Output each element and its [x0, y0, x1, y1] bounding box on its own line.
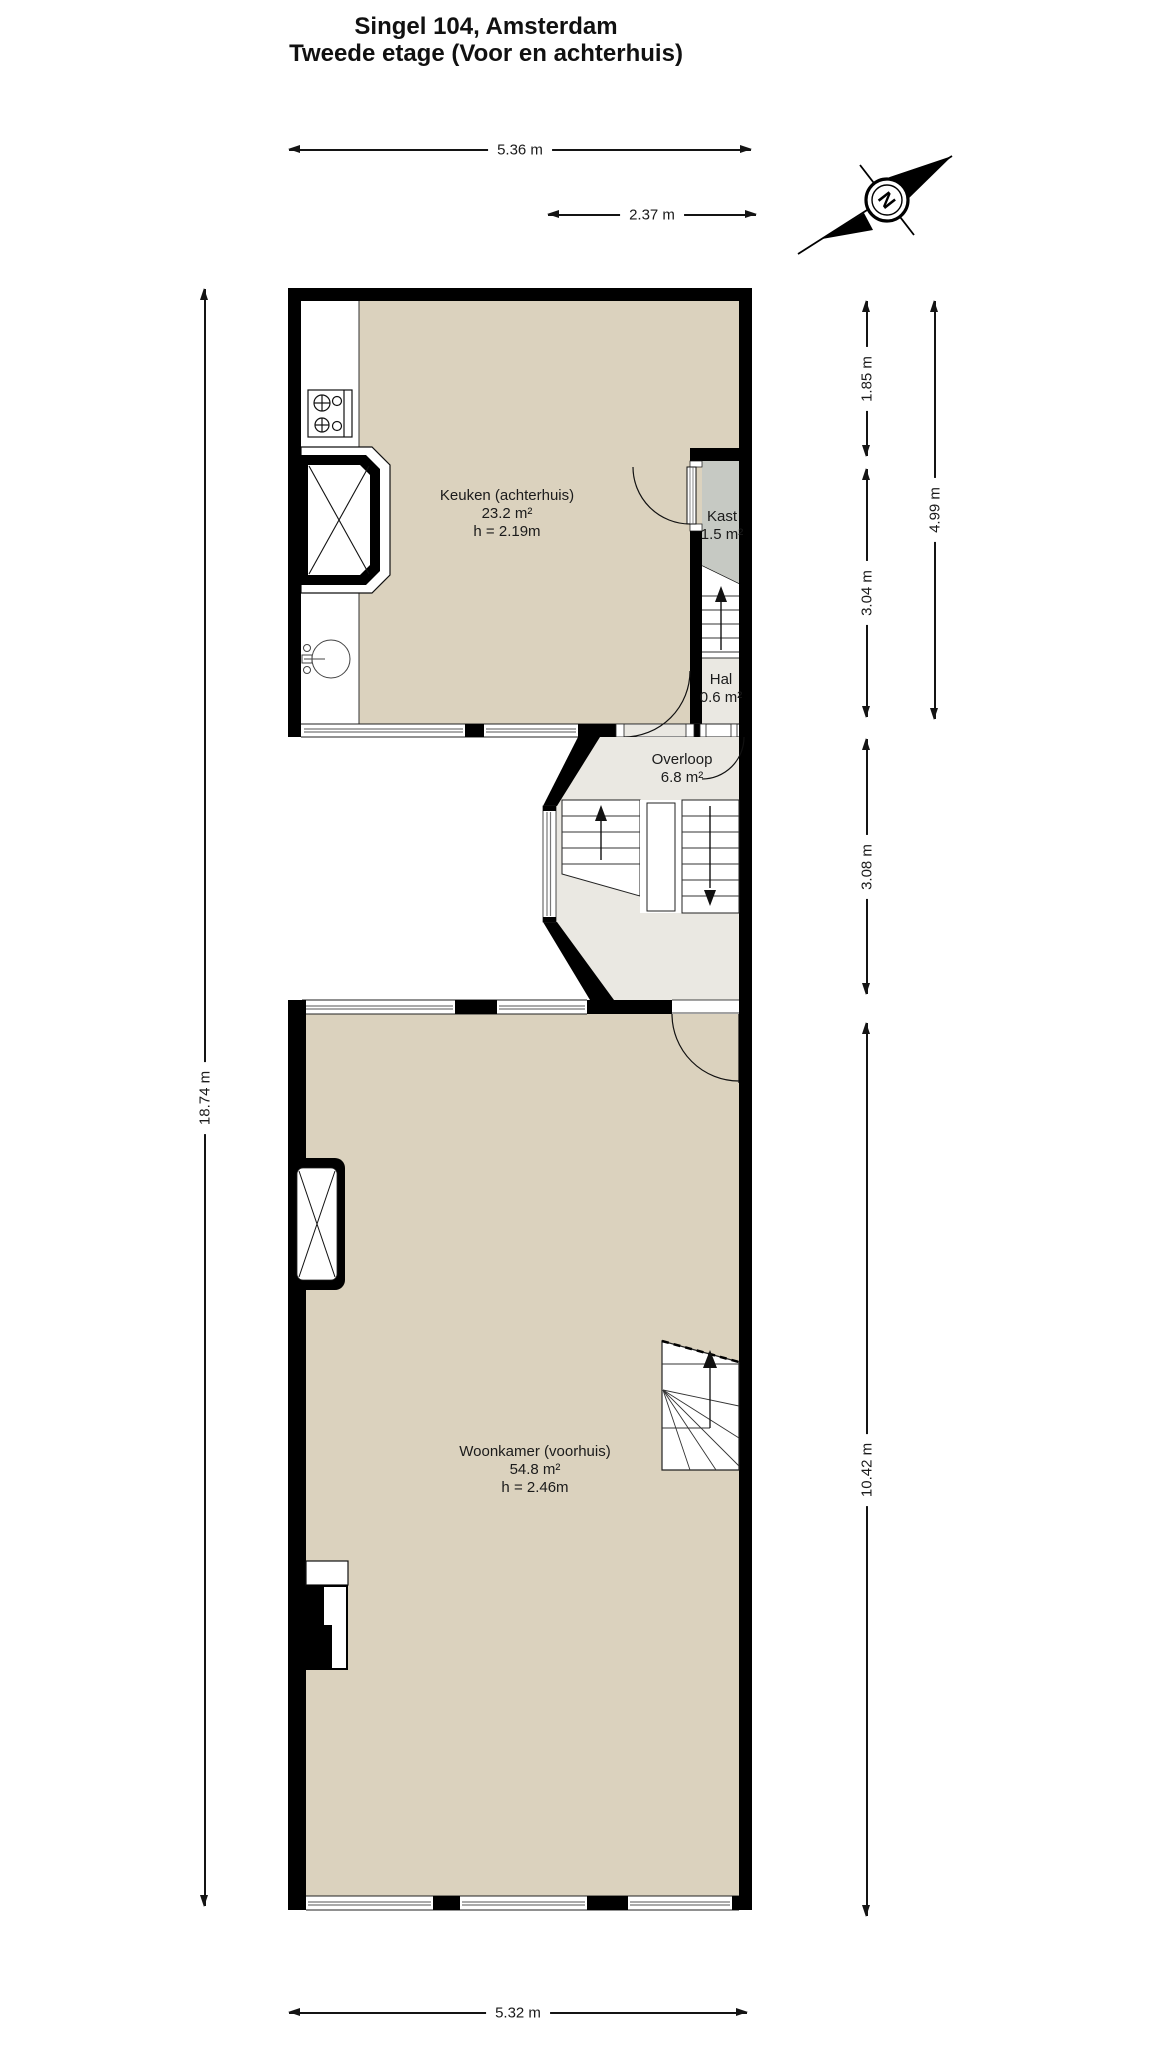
compass-south-needle — [822, 213, 873, 239]
wall-niche-icon — [289, 1158, 345, 1290]
dim-top-right-width-label: 2.37 m — [620, 207, 684, 224]
stove-icon — [308, 390, 352, 437]
woonkamer-label: Woonkamer (voorhuis) 54.8 m² h = 2.46m — [459, 1443, 610, 1497]
dim-right-upper-total: 4.99 m — [929, 300, 941, 720]
woonkamer-bottom-wall — [306, 1896, 739, 1910]
keuken-height: h = 2.19m — [440, 523, 574, 541]
woonkamer-height: h = 2.46m — [459, 1479, 610, 1497]
dim-right-upper-second-label: 3.04 m — [859, 561, 876, 625]
dim-top-width-label: 5.36 m — [488, 142, 552, 159]
dim-right-lower: 10.42 m — [861, 1022, 873, 1917]
overloop-window — [543, 806, 556, 922]
keuken-area: 23.2 m² — [440, 505, 574, 523]
hal-area: 0.6 m² — [700, 689, 743, 707]
kast-label: Kast 1.5 m² — [701, 508, 744, 544]
dim-right-upper-total-label: 4.99 m — [927, 478, 944, 542]
compass-rose: N — [798, 156, 952, 254]
floorplan-page: Singel 104, Amsterdam Tweede etage (Voor… — [0, 0, 1152, 2048]
dim-bottom-width: 5.32 m — [288, 2007, 748, 2019]
floorplan-drawing: N — [0, 0, 1152, 2048]
overloop-name: Overloop — [652, 751, 713, 769]
overloop-area: 6.8 m² — [652, 769, 713, 787]
chimney-icon — [306, 1561, 348, 1670]
dim-top-width: 5.36 m — [288, 144, 752, 156]
sink-icon — [302, 640, 350, 678]
shaft-box-icon — [296, 447, 390, 593]
keuken-name: Keuken (achterhuis) — [440, 487, 574, 505]
kast-name: Kast — [701, 508, 744, 526]
dim-right-upper-first-label: 1.85 m — [859, 347, 876, 411]
overloop-label: Overloop 6.8 m² — [652, 751, 713, 787]
dim-left-height-label: 18.74 m — [197, 1061, 214, 1133]
hal-label: Hal 0.6 m² — [700, 671, 743, 707]
dim-bottom-width-label: 5.32 m — [486, 2005, 550, 2022]
dim-right-middle-label: 3.08 m — [859, 835, 876, 899]
woonkamer-name: Woonkamer (voorhuis) — [459, 1443, 610, 1461]
winder-stairs — [662, 1341, 739, 1470]
keuken-label: Keuken (achterhuis) 23.2 m² h = 2.19m — [440, 487, 574, 541]
woonkamer-area: 54.8 m² — [459, 1461, 610, 1479]
dim-top-right-width: 2.37 m — [547, 209, 757, 221]
dim-right-upper-second: 3.04 m — [861, 468, 873, 718]
dim-right-upper-first: 1.85 m — [861, 300, 873, 457]
dim-right-middle: 3.08 m — [861, 738, 873, 995]
hal-name: Hal — [700, 671, 743, 689]
dim-left-height: 18.74 m — [199, 288, 211, 1907]
kast-area: 1.5 m² — [701, 526, 744, 544]
dim-right-lower-label: 10.42 m — [859, 1433, 876, 1505]
